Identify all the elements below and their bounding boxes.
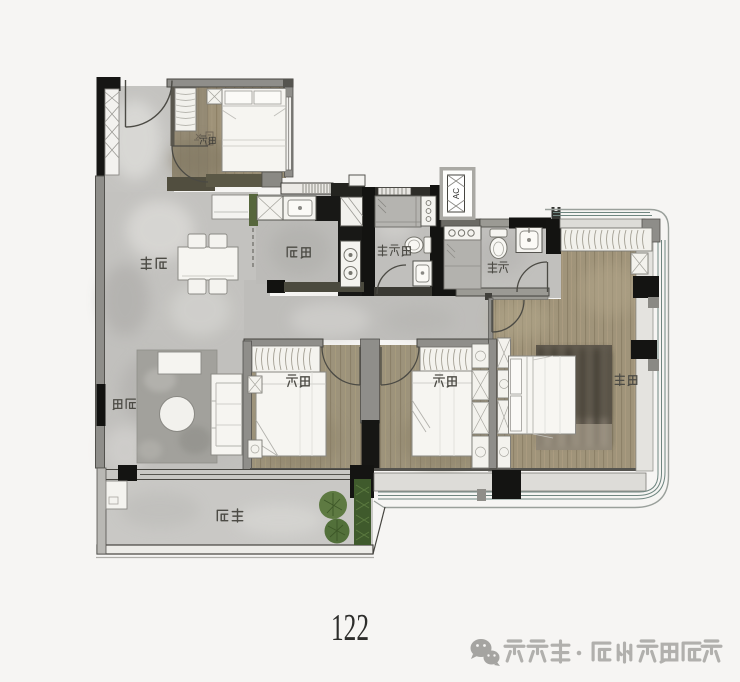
svg-text:AC: AC [452, 188, 461, 199]
svg-text:122: 122 [331, 607, 369, 649]
